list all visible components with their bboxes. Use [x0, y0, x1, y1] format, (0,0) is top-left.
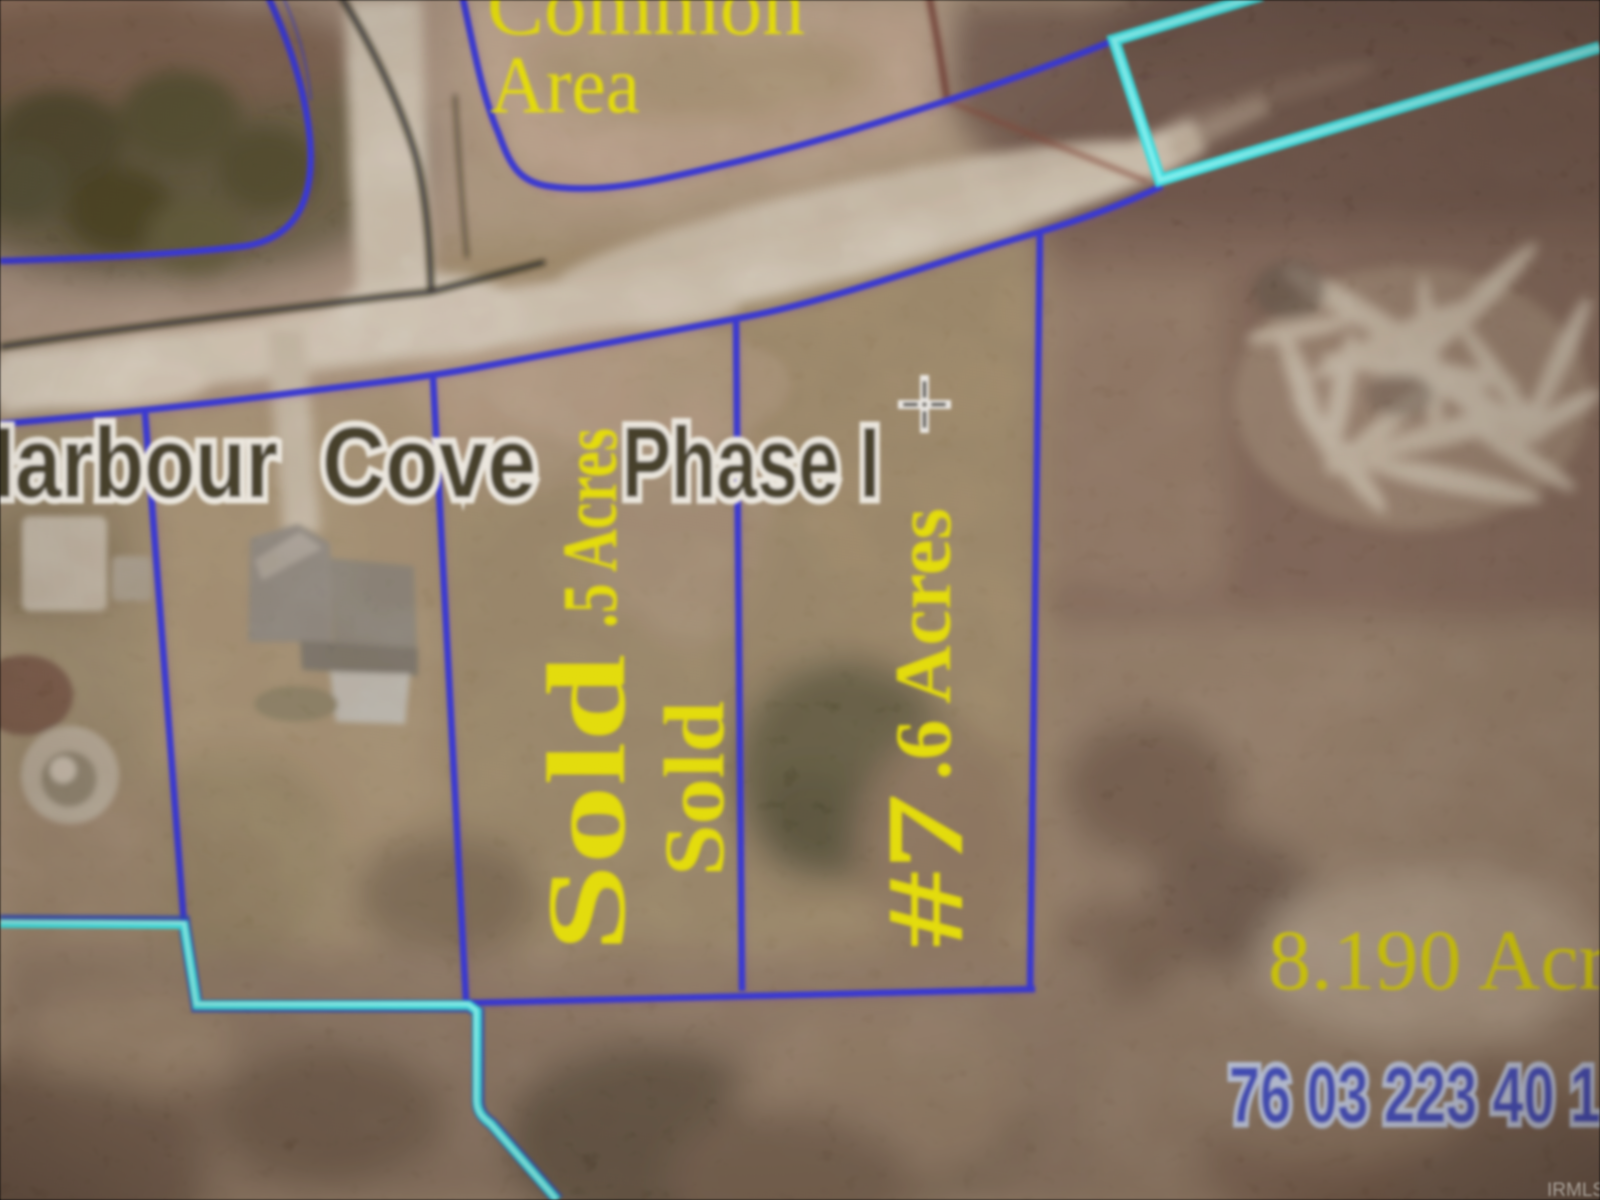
svg-text:IRMLS.: IRMLS.: [1547, 1180, 1600, 1200]
